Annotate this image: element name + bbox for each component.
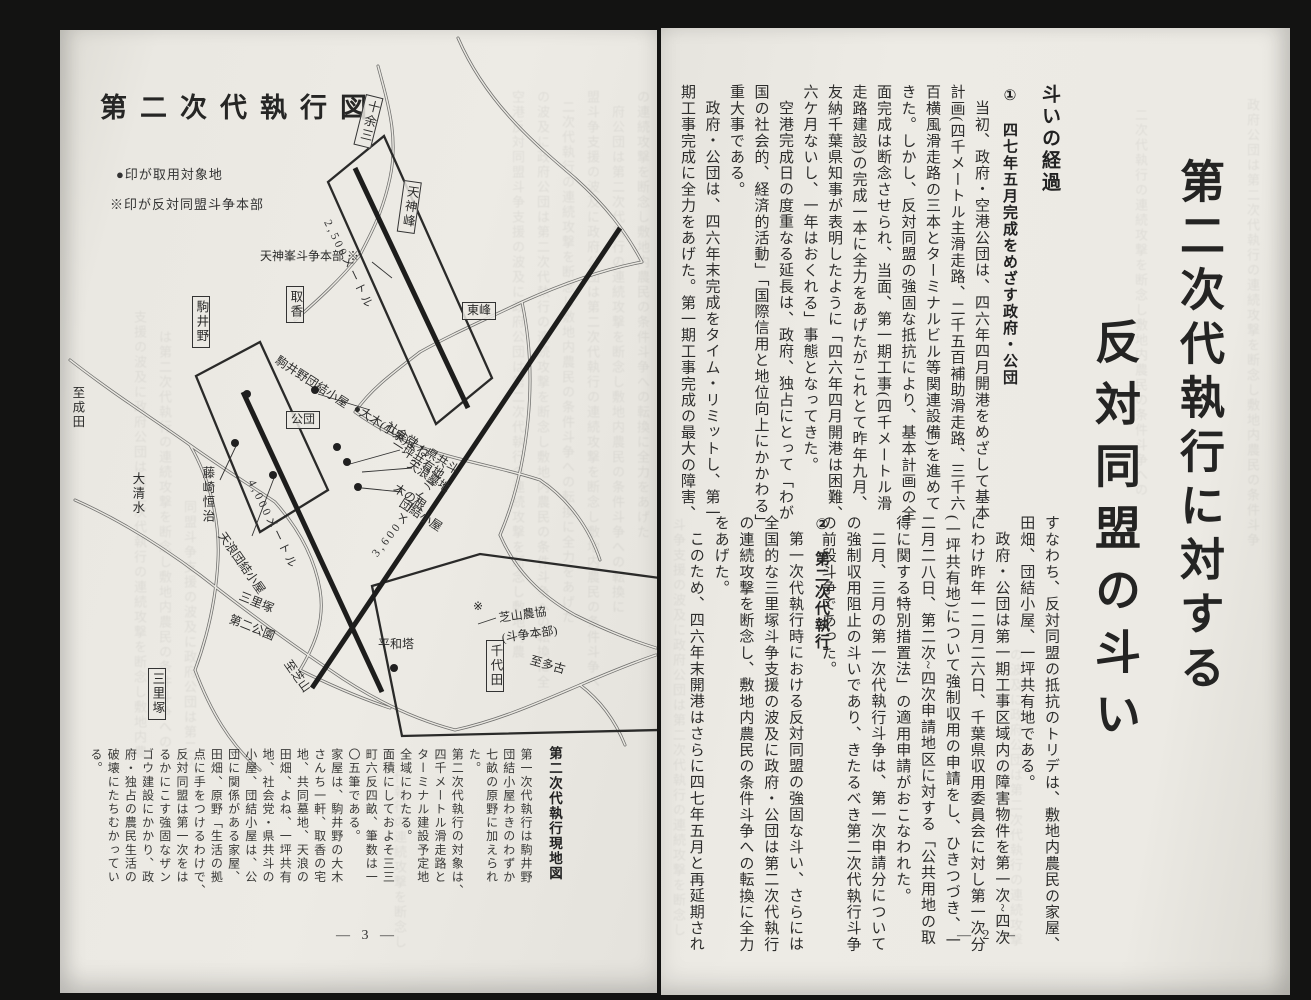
text-column: 〇五筆である。	[348, 748, 360, 843]
text-column: すなわち、反対同盟の抵抗のトリデは、敷地内農民の家屋、	[1043, 515, 1058, 952]
text-column: 破壊にたちむかってい	[107, 748, 119, 884]
page-right: 斗争支援の波及に政府公団は第二次代執行の連続攻撃を断念し政府公団は第二次代執行の…	[661, 28, 1290, 995]
expropriation-target-dot	[311, 386, 319, 394]
scanned-booklet-spread: { "left_page": { "title": "第二次代執行図", "le…	[0, 0, 1311, 1000]
text-column: 地、社会党・県共斗の	[262, 748, 274, 884]
text-column: ターミナル建設予定地	[417, 748, 429, 884]
text-column: 全域にわたる。	[400, 748, 412, 843]
text-column: 田畑、よね、一坪共有	[279, 748, 291, 884]
section-1-heading: ① 四七年五月完成をめざす政府・公団	[999, 86, 1020, 386]
text-column: 計画(四千メートル主滑走路、二千五百補助滑走路、三千六	[949, 84, 964, 511]
text-column: にわけ昨年一二月二六日、千葉県収用委員会に対し第一次分	[969, 515, 984, 952]
text-column: ゴウ建設にかかり、政	[142, 748, 154, 884]
text-column: さんち一軒、取香の宅	[314, 748, 326, 884]
site-boundary-south-zone	[372, 554, 657, 736]
text-column: 第二次代執行の対象は、	[451, 748, 463, 898]
expropriation-target-dot	[333, 443, 341, 451]
text-column: 地、共同墓地、天浪の	[296, 748, 308, 884]
page-number-2: — 2 —	[957, 928, 1019, 944]
text-column: 家屋は、駒井野の大木	[331, 748, 343, 884]
text-column: 府・独占の農民生活の	[124, 748, 136, 884]
text-column: るかにこす強固なザン	[159, 748, 171, 884]
article-title-line2: 反対同盟の斗い	[1081, 318, 1147, 752]
map-label: 取香	[286, 286, 304, 323]
text-column: 団結小屋わきのわずか	[503, 748, 515, 884]
text-column: 四千メートル滑走路と	[434, 748, 446, 884]
text-column: 政府・公団は、四六年末完成をタイム・リミットし、第一	[704, 100, 719, 521]
map-label: 千代田	[486, 640, 504, 692]
text-column: 重大事である。	[728, 84, 743, 197]
map-label: 東峰	[462, 302, 496, 320]
text-column: 二月二八日、第二次~四次申請地区に対する「公共用地の取	[919, 515, 934, 946]
expropriation-target-dot	[390, 664, 398, 672]
text-column: 二月、三月の第一次代執行斗争は、第一次申請分について	[869, 531, 884, 952]
text-column: 七畝の原野に加えられ	[486, 748, 498, 884]
map-label: ※	[473, 600, 483, 614]
text-column: 小屋、団結小屋は、公	[245, 748, 257, 884]
text-column: の連続攻撃を断念し、敷地内農民の条件斗争への転換に全力	[737, 515, 752, 952]
map-label: 平和塔	[378, 638, 414, 652]
legend-struggle-hq: ※印が反対同盟斗争本部	[110, 194, 264, 213]
text-column: をあげた。	[713, 515, 728, 596]
text-column: の前段斗争であった。	[820, 515, 835, 677]
text-column: 六ケ月ないし、一年はおくれる」事態となってきた。	[802, 84, 817, 473]
text-column: 当初、政府・空港公団は、四六年四月開港をめざして基本	[973, 100, 988, 521]
text-column: きた。しかし、反対同盟の強固な抵抗により、基本計画の全	[900, 84, 915, 521]
map-label: 大清水	[130, 472, 144, 516]
map-label: 公団	[286, 411, 320, 429]
text-column: 第一次代執行は駒井野	[520, 748, 532, 884]
map-title: 第二次代執行図	[100, 86, 380, 125]
page-number-3: — 3 —	[336, 928, 398, 944]
bleed-through-text: 斗争支援の波及に政府公団は第二次代執行の連続攻撃を断念し	[669, 518, 688, 938]
page-left: 空港反対同盟斗争支援の波及に政府公団は第二次代執行の連続攻撃を断念し敷地内農の波…	[60, 30, 657, 993]
text-column: 面完成は断念させられ、当面、第一期工事(四千メートル滑	[875, 84, 890, 511]
text-column: る。	[90, 748, 102, 775]
text-column: 面積にしておよそ三三	[382, 748, 394, 884]
map-label: 藤崎恒治	[200, 466, 214, 524]
text-column: の強制収用阻止の斗いであり、きたるべき第二次代執行斗争	[845, 515, 860, 952]
text-column: 点に手をつけるわけで、	[193, 748, 205, 898]
text-column: 第一次代執行時における反対同盟の強固な斗い、さらには	[787, 531, 802, 952]
bottom-text-caption: 第二次代執行現地図	[544, 746, 564, 881]
text-column: 町六反四畝、筆数は一	[365, 748, 377, 884]
label-pointer-lines	[220, 262, 496, 624]
text-column: 田畑、原野「生活の拠	[210, 748, 222, 884]
text-column: 得に関する特別措置法」の適用申請がおこなわれた。	[894, 515, 909, 904]
expropriation-target-dot	[343, 458, 351, 466]
section-heading-progress: 斗いの経過	[1036, 84, 1063, 194]
legend-expropriation-target: ●印が取用対象地	[116, 164, 223, 183]
text-column: 団に関係がある家屋、	[228, 748, 240, 884]
article-title-line1: 第二次代執行に対する	[1166, 158, 1231, 698]
text-column: た。	[468, 748, 480, 775]
text-column: 全国的な三里塚斗争支援の波及に政府・公団は第二次代執行	[762, 515, 777, 952]
text-column: 反対同盟は第一次をは	[176, 748, 188, 884]
text-column: 空港完成日の度重なる延長は、政府、独占にとって「わが	[777, 100, 792, 521]
expropriation-target-dot	[231, 439, 239, 447]
text-column: 走路建設)の完成一本に全力をあげたがこれとて昨年九月、	[851, 84, 866, 511]
map-label: 駒井野	[192, 296, 210, 348]
text-column: 田畑、団結小屋、一坪共有地である。	[1018, 515, 1033, 790]
bleed-through-text: 政府公団は第二次代執行の連続攻撃を断念し敷地内農民の条件斗争	[1243, 98, 1262, 548]
expropriation-target-dot	[269, 471, 277, 479]
text-column: 期工事完成に全力をあげた。第一期工事完成の最大の障害、	[679, 84, 694, 521]
text-column: (一坪共有地)について強制収用の申請をし、ひきつづき、一	[944, 515, 959, 949]
text-column: 友納千葉県知事が表明したように「四六年四月開港は困難、	[826, 84, 841, 521]
text-column: 政府・公団は第一期工事区域内の障害物件を第一次~四次	[993, 531, 1008, 945]
text-column: このため、四六年末開港はさらに四七年五月と再延期され	[688, 531, 703, 952]
map-label: 三里塚	[148, 668, 166, 720]
expropriation-target-dot	[243, 390, 251, 398]
text-column: 国の社会的、経済的活動」「国際信用と地位向上にかかわる」	[753, 84, 768, 530]
text-column: 百横風滑走路の三本とターミナルビル等関連設備)を進めて	[924, 84, 939, 511]
map-label: 至成田	[70, 386, 84, 430]
expropriation-target-dot	[354, 483, 362, 491]
